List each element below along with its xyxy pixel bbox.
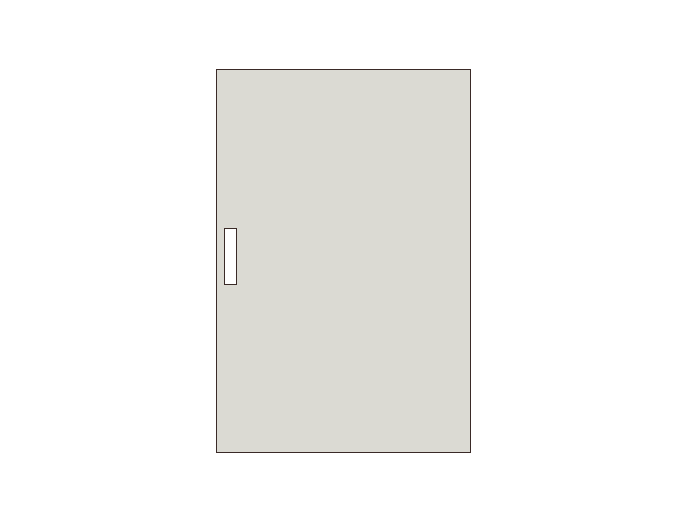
scene-canvas (0, 0, 689, 524)
door-handle[interactable] (224, 228, 237, 285)
door-panel (216, 69, 471, 453)
